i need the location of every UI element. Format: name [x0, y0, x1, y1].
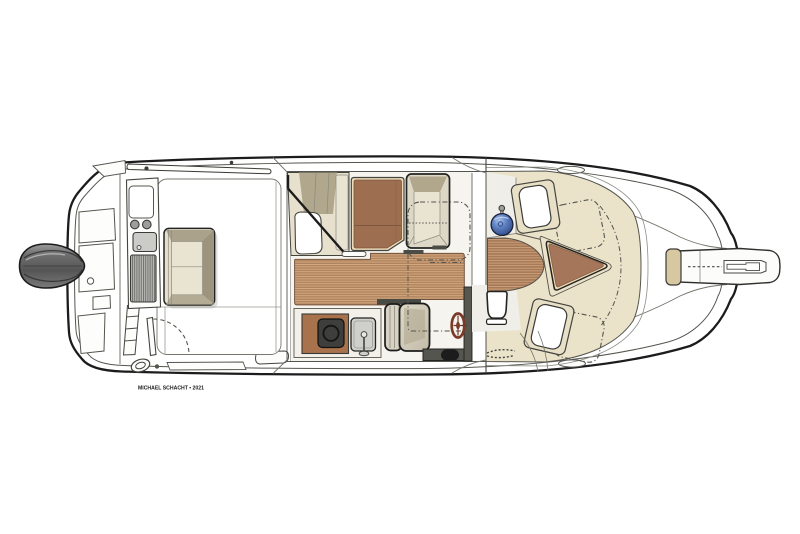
svg-text:MICHAEL SCHACHT • 2021: MICHAEL SCHACHT • 2021 — [138, 386, 204, 392]
